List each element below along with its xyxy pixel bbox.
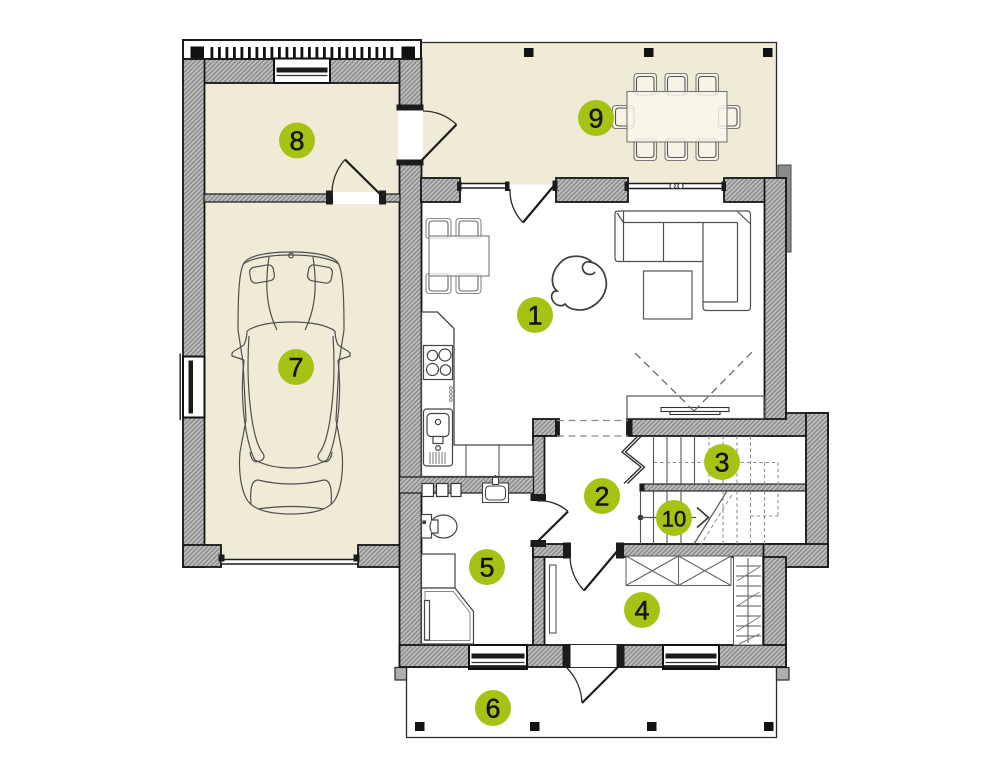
- svg-text:2: 2: [594, 482, 609, 512]
- svg-text:10: 10: [662, 507, 686, 532]
- svg-text:4: 4: [634, 596, 649, 626]
- svg-text:6: 6: [485, 694, 500, 724]
- svg-text:1: 1: [527, 301, 542, 331]
- svg-text:5: 5: [479, 553, 494, 583]
- svg-text:7: 7: [288, 353, 303, 383]
- svg-text:9: 9: [588, 104, 603, 134]
- svg-text:8: 8: [289, 126, 304, 156]
- svg-text:3: 3: [714, 448, 729, 478]
